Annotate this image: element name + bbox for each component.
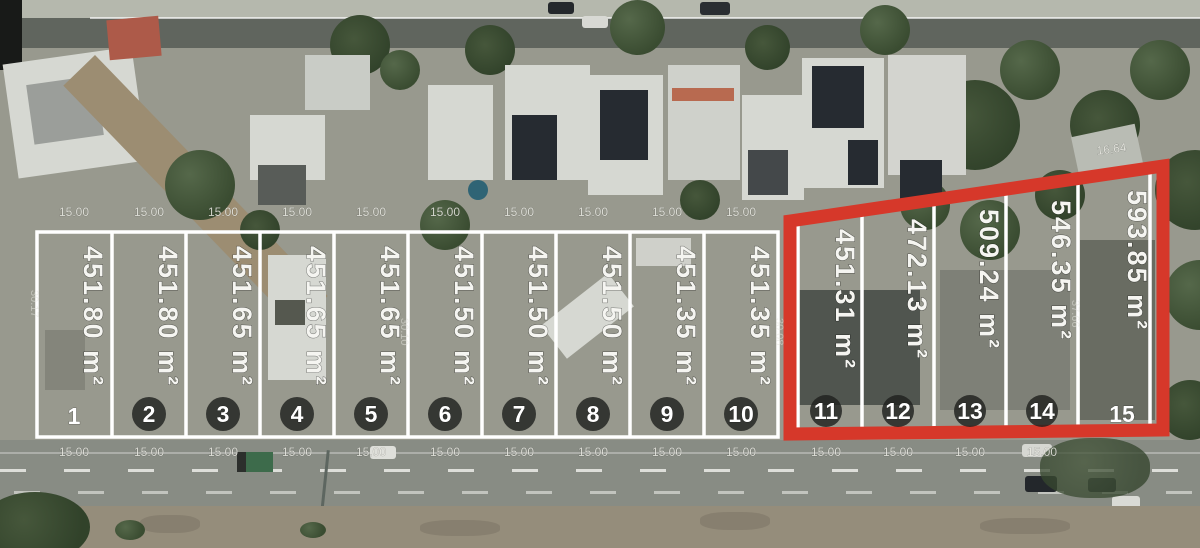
lot-area-label: 472.13 m² xyxy=(902,219,932,360)
dimension-label: 15.00 xyxy=(1027,445,1057,459)
dimension-label: 15.00 xyxy=(430,205,460,219)
dimension-label: 15.00 xyxy=(652,205,682,219)
lot-number: 10 xyxy=(728,401,754,427)
lot-number: 6 xyxy=(439,401,452,427)
lot-area-label: 451.50 m² xyxy=(449,246,479,387)
dimension-label: 15.00 xyxy=(955,445,985,459)
dimension-label: 15.00 xyxy=(578,205,608,219)
top-dimension-labels: 15.00 15.00 15.00 15.00 15.00 15.00 15.0… xyxy=(59,140,1128,219)
lot-number: 9 xyxy=(661,401,674,427)
lot-area-label: 451.50 m² xyxy=(597,246,627,387)
dimension-label: 30.08 xyxy=(773,318,785,346)
lot-overlay: 451.80 m² 451.80 m² 451.65 m² 451.65 m² … xyxy=(0,0,1200,548)
lot-number: 4 xyxy=(291,401,304,427)
dimension-label: 15.00 xyxy=(504,205,534,219)
dimension-label: 15.00 xyxy=(811,445,841,459)
lot-number: 2 xyxy=(143,401,156,427)
lot-area-label: 509.24 m² xyxy=(974,209,1004,350)
dimension-label: 15.00 xyxy=(282,445,312,459)
dimension-label: 15.00 xyxy=(356,205,386,219)
dimension-label: 15.00 xyxy=(208,205,238,219)
dimension-label: 37.66 xyxy=(1069,300,1081,328)
dimension-label: 15.00 xyxy=(208,445,238,459)
lot-area-label: 451.35 m² xyxy=(745,246,775,387)
dimension-label: 15.00 xyxy=(134,445,164,459)
dimension-label: 15.00 xyxy=(726,445,756,459)
lot-number: 5 xyxy=(365,401,378,427)
dimension-label: 15.00 xyxy=(282,205,312,219)
lot-area-label: 451.65 m² xyxy=(375,246,405,387)
lot-number: 1 xyxy=(68,403,81,429)
lot-number-badges: 1 2 3 4 5 6 7 8 9 10 11 12 13 1 xyxy=(68,395,1135,431)
lot-number: 8 xyxy=(587,401,600,427)
dimension-label: 15.00 xyxy=(356,445,386,459)
lot-number: 15 xyxy=(1109,401,1135,427)
lot-area-label: 451.65 m² xyxy=(227,246,257,387)
lot-area-label: 451.65 m² xyxy=(301,246,331,387)
bottom-dimension-labels: 15.00 15.00 15.00 15.00 15.00 15.00 15.0… xyxy=(59,445,1057,459)
dimension-label: 15.00 xyxy=(59,205,89,219)
dimension-label: 15.00 xyxy=(578,445,608,459)
lot-number: 12 xyxy=(885,398,911,424)
dimension-label: 15.00 xyxy=(134,205,164,219)
lot-area-label: 593.85 m² xyxy=(1122,190,1152,331)
lot-area-label: 451.50 m² xyxy=(523,246,553,387)
lot-area-label: 451.31 m² xyxy=(830,229,860,370)
dimension-label: 15.00 xyxy=(430,445,460,459)
dimension-label: 15.00 xyxy=(504,445,534,459)
lot-area-label: 451.80 m² xyxy=(78,246,108,387)
dimension-label: 30.17 xyxy=(28,290,40,318)
dimension-label: 30.10 xyxy=(398,318,410,346)
dimension-label: 15.00 xyxy=(883,445,913,459)
lot-number: 14 xyxy=(1029,398,1055,424)
dimension-label: 15.00 xyxy=(726,205,756,219)
lot-number: 7 xyxy=(513,401,526,427)
lot-number: 11 xyxy=(814,398,839,424)
dimension-label: 15.00 xyxy=(59,445,89,459)
lot-area-labels: 451.80 m² 451.80 m² 451.65 m² 451.65 m² … xyxy=(78,190,1152,387)
lot-area-label: 451.80 m² xyxy=(153,246,183,387)
lot-number: 3 xyxy=(217,401,230,427)
dimension-label: 16.64 xyxy=(1096,140,1128,158)
aerial-lot-map: 451.80 m² 451.80 m² 451.65 m² 451.65 m² … xyxy=(0,0,1200,548)
lot-number: 13 xyxy=(957,398,983,424)
dimension-label: 15.00 xyxy=(652,445,682,459)
lot-area-label: 451.35 m² xyxy=(671,246,701,387)
